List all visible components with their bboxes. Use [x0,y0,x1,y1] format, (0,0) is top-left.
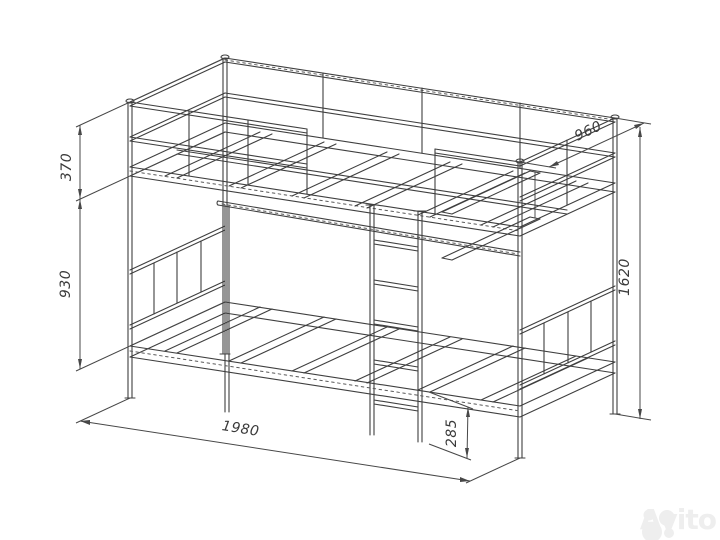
upper-bunk-support-rail [217,201,520,412]
post-front-left [125,99,135,398]
lower-headboard [130,226,225,329]
dimension-285-label: 285 [444,419,460,447]
screenshot-stage: 370 930 960 [0,0,720,540]
dimension-930: 930 [58,199,82,369]
dimension-960: 960 [520,118,651,168]
dimension-1620-label: 1620 [617,258,633,296]
avito-watermark: Avito [640,506,716,534]
bunk-bed-drawing: 370 930 960 [0,0,720,540]
dimension-annotations: 370 930 960 [58,58,651,483]
dimension-370: 370 [59,125,82,199]
dimension-960-label: 960 [572,118,604,144]
dimension-1980-label: 1980 [221,418,261,440]
upper-guard-rails [130,58,615,214]
dimension-1620: 1620 [615,127,651,420]
ladder [366,205,426,442]
dimension-370-label: 370 [59,153,75,181]
dimension-930-label: 930 [58,270,74,298]
bed-structure [125,55,620,458]
lower-footboard [520,286,615,389]
dimension-285: 285 [429,392,473,460]
upper-bunk-frame [130,123,615,236]
avito-logo-icon [640,506,680,540]
